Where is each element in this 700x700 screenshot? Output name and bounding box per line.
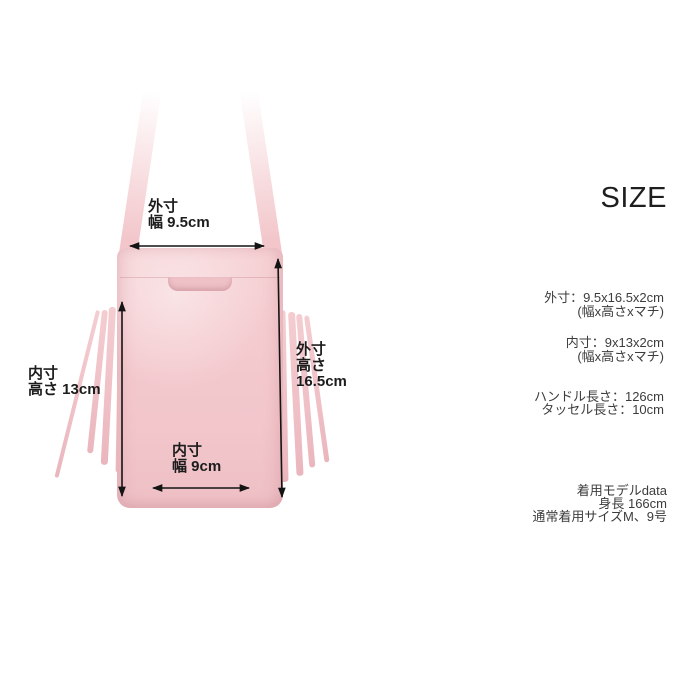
label-line: 外寸 <box>148 199 210 215</box>
label-outer-width: 外寸 幅 9.5cm <box>148 199 210 231</box>
length-specs: ハンドル長さ：126cm タッセル長さ：10cm <box>534 390 664 416</box>
label-line: 幅 9cm <box>172 459 221 475</box>
arrow-outer-height <box>278 259 282 497</box>
inner-size-text: 内寸：9x13x2cm <box>544 336 664 350</box>
label-line: 内寸 <box>172 443 221 459</box>
label-line: 16.5cm <box>296 374 347 390</box>
label-line: 高さ <box>296 358 347 374</box>
label-inner-height: 内寸 高さ 13cm <box>28 366 101 398</box>
tassel-length-text: タッセル長さ：10cm <box>534 403 664 416</box>
label-line: 内寸 <box>28 366 101 382</box>
outer-size-text: 外寸：9.5x16.5x2cm <box>544 291 664 305</box>
label-outer-height: 外寸 高さ 16.5cm <box>296 342 347 390</box>
product-size-chart: 外寸 幅 9.5cm 内寸 高さ 13cm 外寸 高さ 16.5cm 内寸 幅 … <box>0 0 700 700</box>
outer-size-note: (幅x高さxマチ) <box>544 305 664 319</box>
size-heading: SIZE <box>601 182 667 215</box>
label-line: 外寸 <box>296 342 347 358</box>
inner-size-note: (幅x高さxマチ) <box>544 350 664 364</box>
label-inner-width: 内寸 幅 9cm <box>172 443 221 475</box>
size-specs: 外寸：9.5x16.5x2cm (幅x高さxマチ) 内寸：9x13x2cm (幅… <box>544 291 664 364</box>
model-data: 着用モデルdata 身長 166cm 通常着用サイズM、9号 <box>532 484 667 523</box>
label-line: 高さ 13cm <box>28 382 101 398</box>
label-line: 幅 9.5cm <box>148 215 210 231</box>
model-size-text: 通常着用サイズM、9号 <box>532 510 667 523</box>
